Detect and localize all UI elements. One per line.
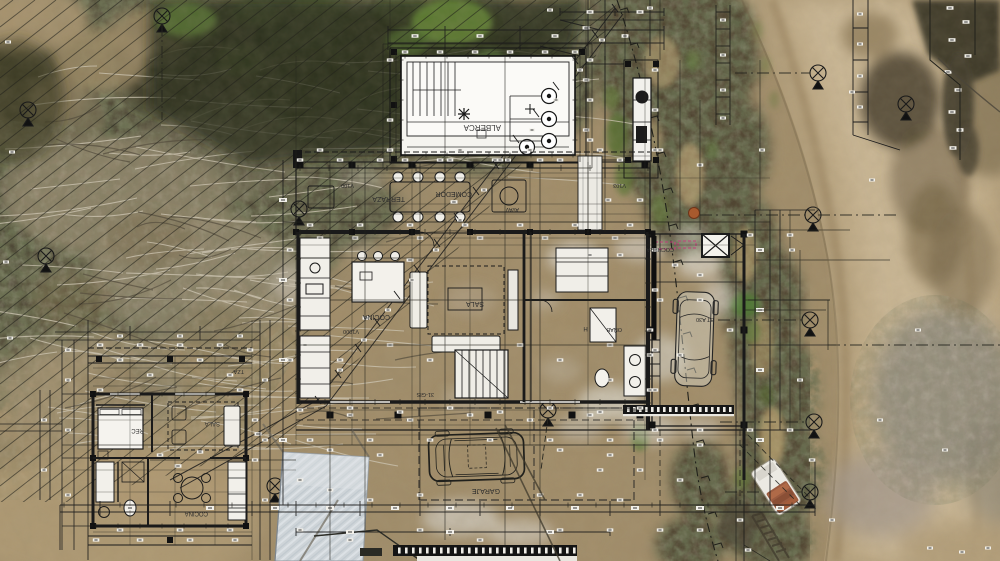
svg-text:SALA: SALA xyxy=(466,300,484,307)
svg-text:COCINA: COCINA xyxy=(185,510,208,516)
svg-text:TERRAZA: TERRAZA xyxy=(372,195,405,202)
svg-text:V103: V103 xyxy=(613,182,626,188)
svg-text:AVAV: AVAV xyxy=(505,206,519,212)
svg-text:COCINA: COCINA xyxy=(362,313,390,320)
svg-text:BT A30: BT A30 xyxy=(696,316,714,322)
svg-text:V100: V100 xyxy=(341,182,354,188)
svg-text:GARAJE: GARAJE xyxy=(472,487,500,494)
svg-text:V1000: V1000 xyxy=(343,328,359,334)
svg-text:REC: REC xyxy=(131,427,144,433)
svg-text:ALBERCA: ALBERCA xyxy=(463,123,501,132)
svg-text:SALA: SALA xyxy=(205,420,220,426)
svg-text:31-GIS: 31-GIS xyxy=(416,391,434,397)
svg-text:OÑAB: OÑAB xyxy=(606,326,622,333)
svg-text:COMEDOR: COMEDOR xyxy=(435,190,472,197)
svg-text:TZA: TZA xyxy=(233,368,244,374)
svg-text:COCHERA: COCHERA xyxy=(646,246,674,252)
